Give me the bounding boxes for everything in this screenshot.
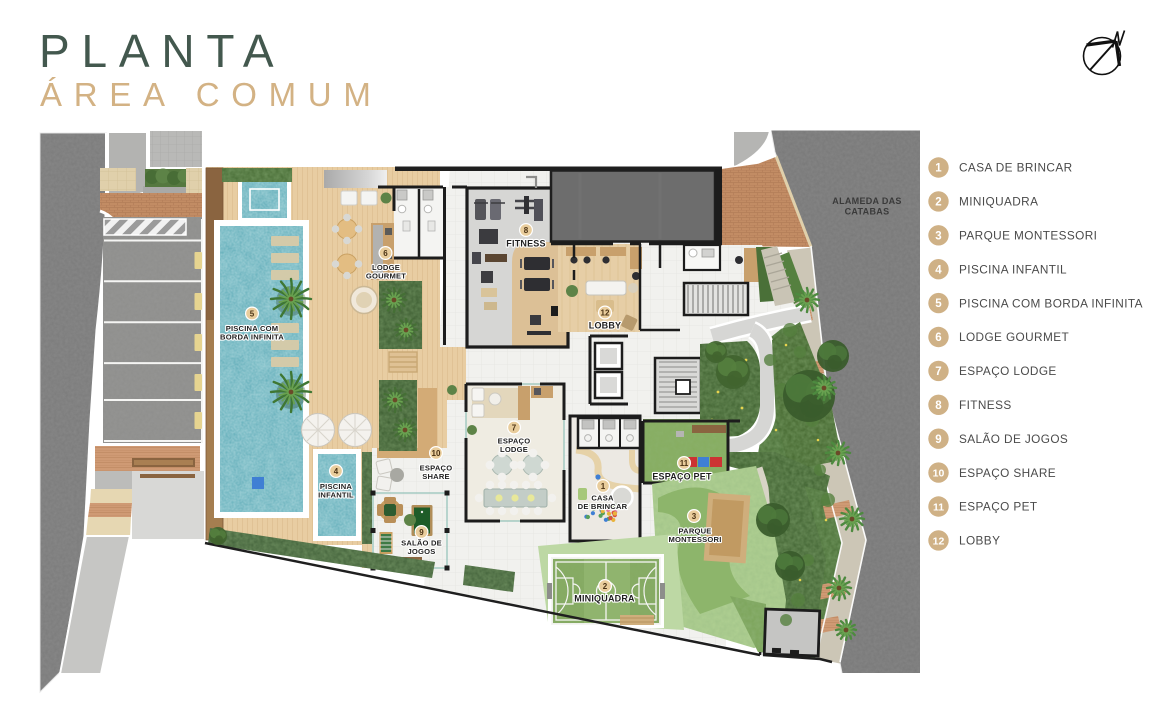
svg-text:12: 12 [933, 536, 945, 548]
svg-text:4: 4 [334, 467, 339, 476]
svg-text:LOBBY: LOBBY [589, 321, 622, 331]
svg-text:FITNESS: FITNESS [506, 239, 545, 249]
svg-text:7: 7 [935, 366, 941, 378]
svg-text:PISCINA COM BORDA INFINITA: PISCINA COM BORDA INFINITA [959, 296, 1143, 310]
svg-text:9: 9 [935, 434, 941, 446]
svg-text:2: 2 [935, 197, 941, 209]
svg-text:ESPAÇO SHARE: ESPAÇO SHARE [959, 466, 1056, 480]
svg-text:1: 1 [601, 482, 606, 491]
svg-text:PLANTA: PLANTA [39, 25, 285, 77]
svg-text:LODGE GOURMET: LODGE GOURMET [959, 330, 1069, 344]
svg-text:PISCINA COMBORDA INFINITA: PISCINA COMBORDA INFINITA [220, 324, 284, 342]
svg-text:PARQUE MONTESSORI: PARQUE MONTESSORI [959, 229, 1097, 243]
svg-text:8: 8 [935, 400, 942, 412]
svg-text:10: 10 [933, 468, 945, 480]
svg-text:6: 6 [935, 332, 941, 344]
svg-text:ESPAÇO PET: ESPAÇO PET [959, 500, 1038, 514]
svg-text:5: 5 [250, 309, 255, 318]
svg-text:5: 5 [935, 298, 942, 310]
svg-text:9: 9 [419, 528, 424, 537]
svg-text:ESPAÇO LODGE: ESPAÇO LODGE [959, 364, 1057, 378]
svg-text:11: 11 [680, 459, 689, 468]
svg-text:3: 3 [692, 512, 697, 521]
svg-text:11: 11 [933, 502, 944, 514]
svg-text:3: 3 [935, 230, 941, 242]
svg-text:ÁREA COMUM: ÁREA COMUM [40, 76, 383, 113]
svg-text:MINIQUADRA: MINIQUADRA [959, 195, 1038, 209]
svg-text:CASA DE BRINCAR: CASA DE BRINCAR [959, 161, 1073, 175]
svg-text:4: 4 [935, 264, 942, 276]
svg-text:FITNESS: FITNESS [959, 398, 1012, 412]
svg-text:MINIQUADRA: MINIQUADRA [574, 594, 635, 604]
svg-text:7: 7 [512, 423, 517, 432]
svg-text:PISCINAINFANTIL: PISCINAINFANTIL [318, 482, 354, 500]
svg-text:SALÃO DE JOGOS: SALÃO DE JOGOS [959, 432, 1068, 446]
svg-text:1: 1 [935, 163, 942, 175]
svg-text:10: 10 [432, 449, 441, 458]
svg-text:PISCINA INFANTIL: PISCINA INFANTIL [959, 262, 1067, 276]
svg-text:ESPAÇOLODGE: ESPAÇOLODGE [498, 437, 531, 455]
svg-text:ESPAÇO PET: ESPAÇO PET [652, 472, 712, 482]
svg-text:2: 2 [603, 582, 608, 591]
svg-text:LOBBY: LOBBY [959, 534, 1000, 548]
svg-text:12: 12 [601, 308, 610, 317]
svg-text:6: 6 [383, 249, 388, 258]
svg-text:8: 8 [524, 226, 529, 235]
svg-text:ESPAÇOSHARE: ESPAÇOSHARE [420, 464, 453, 482]
